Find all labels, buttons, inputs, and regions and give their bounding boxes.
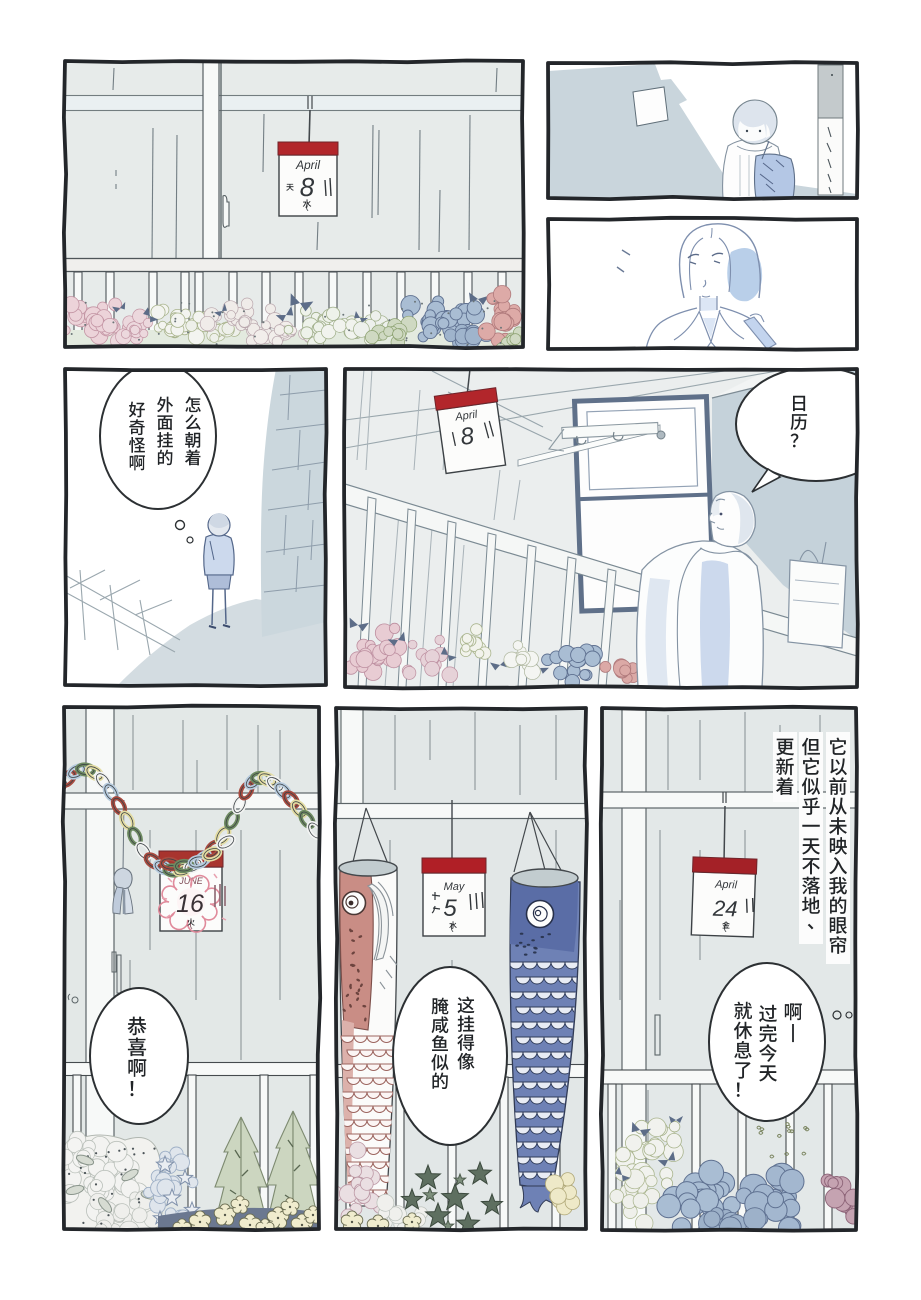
svg-text:April: April [295,158,320,172]
svg-text:5: 5 [443,895,457,922]
svg-text:May: May [444,881,466,893]
svg-text:April: April [714,879,738,892]
svg-text:24: 24 [712,896,738,922]
svg-text:8: 8 [300,172,315,202]
svg-text:16: 16 [176,890,204,918]
